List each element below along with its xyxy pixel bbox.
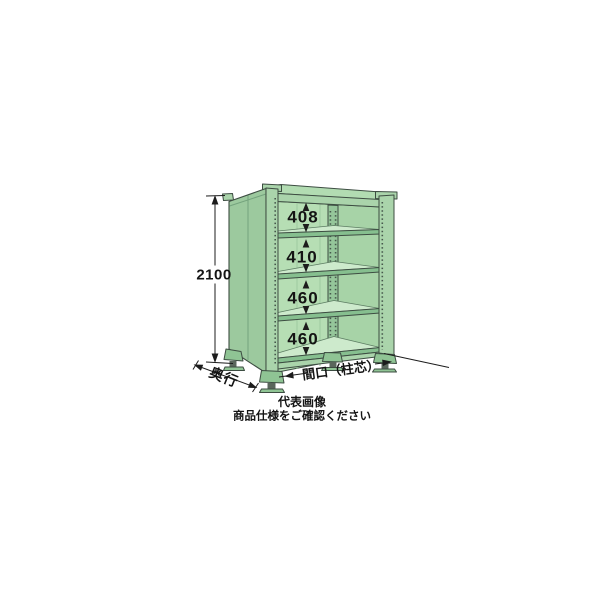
caption-check-specs-note: 商品仕様をご確認ください	[233, 411, 371, 423]
shelf-spacing-2: 410	[286, 248, 317, 265]
rack-side-panel	[229, 189, 266, 374]
shelf-spacing-1: 408	[287, 209, 318, 226]
shelf-spacing-3: 460	[287, 289, 318, 306]
caption-representative-image: 代表画像	[278, 396, 326, 408]
product-image: 2100 408 410 460 460 奥行 間口（柱芯） 代表画像 商品仕様…	[0, 0, 600, 600]
shelf-spacing-4: 460	[287, 330, 318, 347]
overall-height-dimension: 2100	[196, 267, 231, 282]
